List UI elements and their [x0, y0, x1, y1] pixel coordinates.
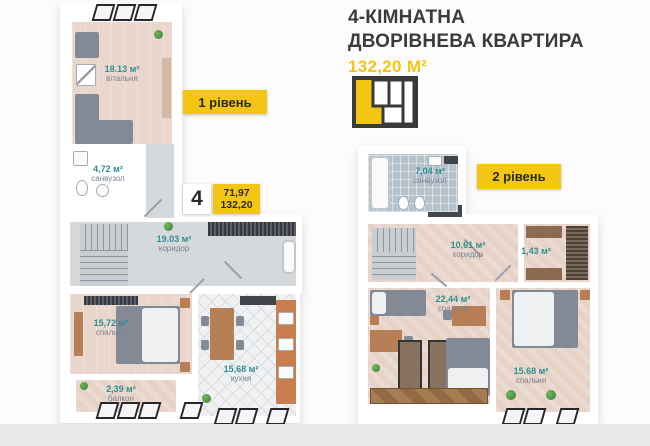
total-area-value-small: 132,20: [220, 199, 252, 211]
plant-icon: [506, 390, 516, 400]
bathtub: [370, 156, 390, 210]
staircase-upper-flight: [372, 228, 416, 252]
closet-shelf: [526, 226, 562, 238]
bed-blanket: [514, 292, 554, 346]
nightstand: [370, 316, 379, 325]
nightstand: [580, 290, 590, 300]
plant-icon: [372, 364, 380, 372]
area-badge: 71,97 132,20: [213, 184, 260, 214]
rug: [398, 340, 422, 390]
sink: [428, 156, 442, 166]
wardrobe: [370, 388, 488, 404]
bed-pillow: [372, 292, 386, 314]
rooms-count-badge: 4: [183, 184, 211, 214]
bottom-strip: [0, 424, 650, 446]
shelf: [444, 156, 458, 164]
staircase-lower-flight: [372, 252, 416, 280]
closet-shelf: [526, 268, 562, 280]
desk: [452, 306, 486, 326]
bidet: [414, 196, 425, 210]
level1-badge: 1 рівень: [183, 90, 267, 114]
closet-rack: [566, 226, 588, 280]
chair: [443, 310, 452, 320]
floorplan-poster: 4-КІМНАТНА ДВОРІВНЕВА КВАРТИРА 132,20 М²: [0, 0, 650, 446]
plant-icon: [546, 390, 556, 400]
toilet: [398, 196, 409, 210]
nightstand: [500, 290, 510, 300]
living-area-value: 71,97: [223, 187, 249, 199]
level2-badge: 2 рівень: [477, 164, 561, 189]
